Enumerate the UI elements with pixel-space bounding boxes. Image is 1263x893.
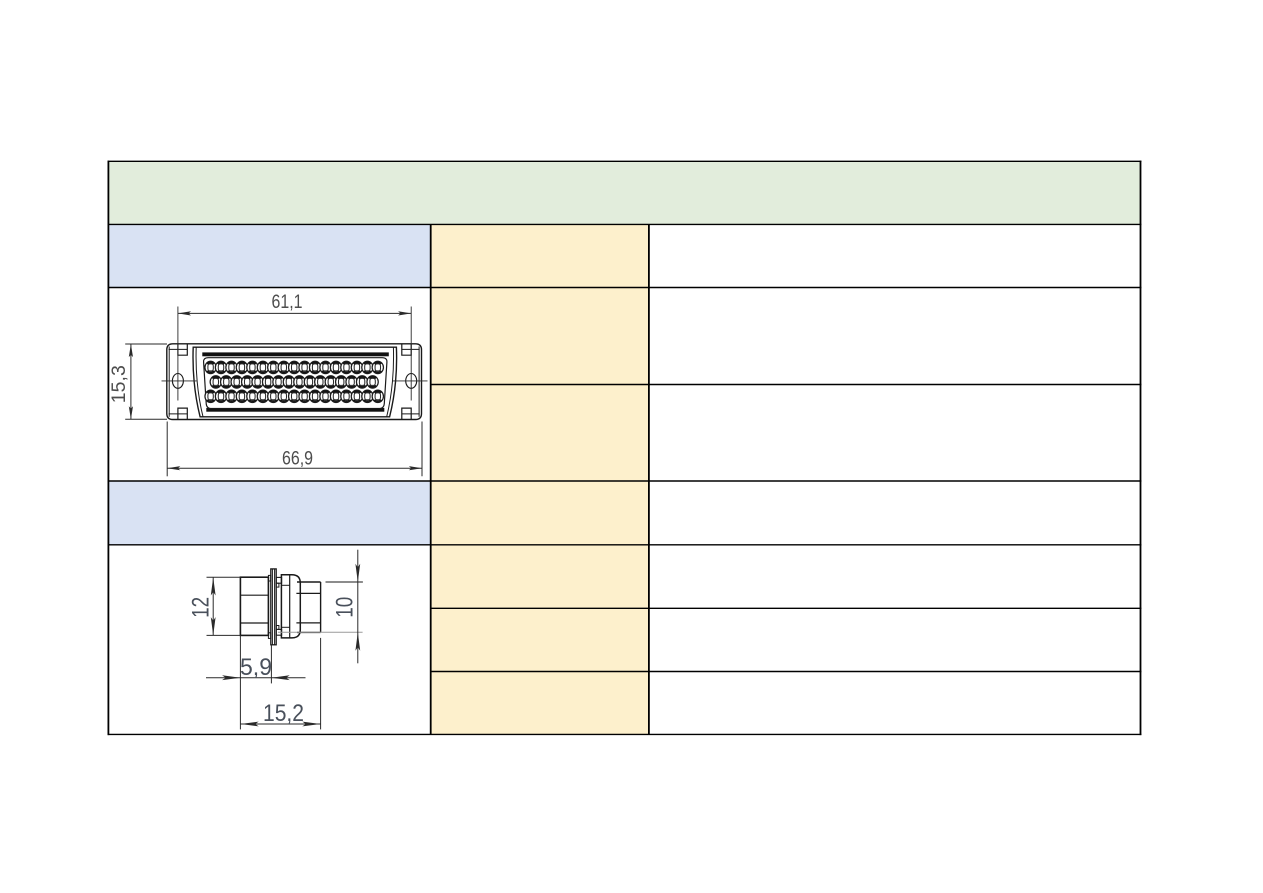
svg-text:15,3: 15,3 bbox=[108, 365, 130, 403]
svg-text:12: 12 bbox=[187, 597, 214, 618]
svg-text:10: 10 bbox=[331, 597, 358, 618]
svg-text:5,9: 5,9 bbox=[240, 654, 272, 681]
svg-text:66,9: 66,9 bbox=[282, 448, 313, 470]
svg-text:61,1: 61,1 bbox=[272, 291, 303, 313]
svg-text:15,2: 15,2 bbox=[263, 700, 304, 727]
